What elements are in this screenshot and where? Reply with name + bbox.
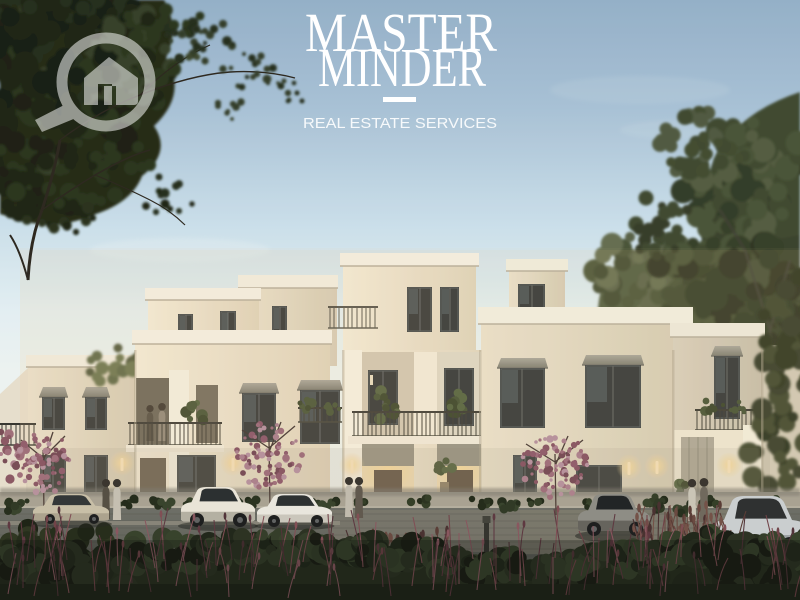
svg-text:MINDER: MINDER <box>318 37 486 98</box>
svg-text:REAL ESTATE SERVICES: REAL ESTATE SERVICES <box>303 115 497 132</box>
